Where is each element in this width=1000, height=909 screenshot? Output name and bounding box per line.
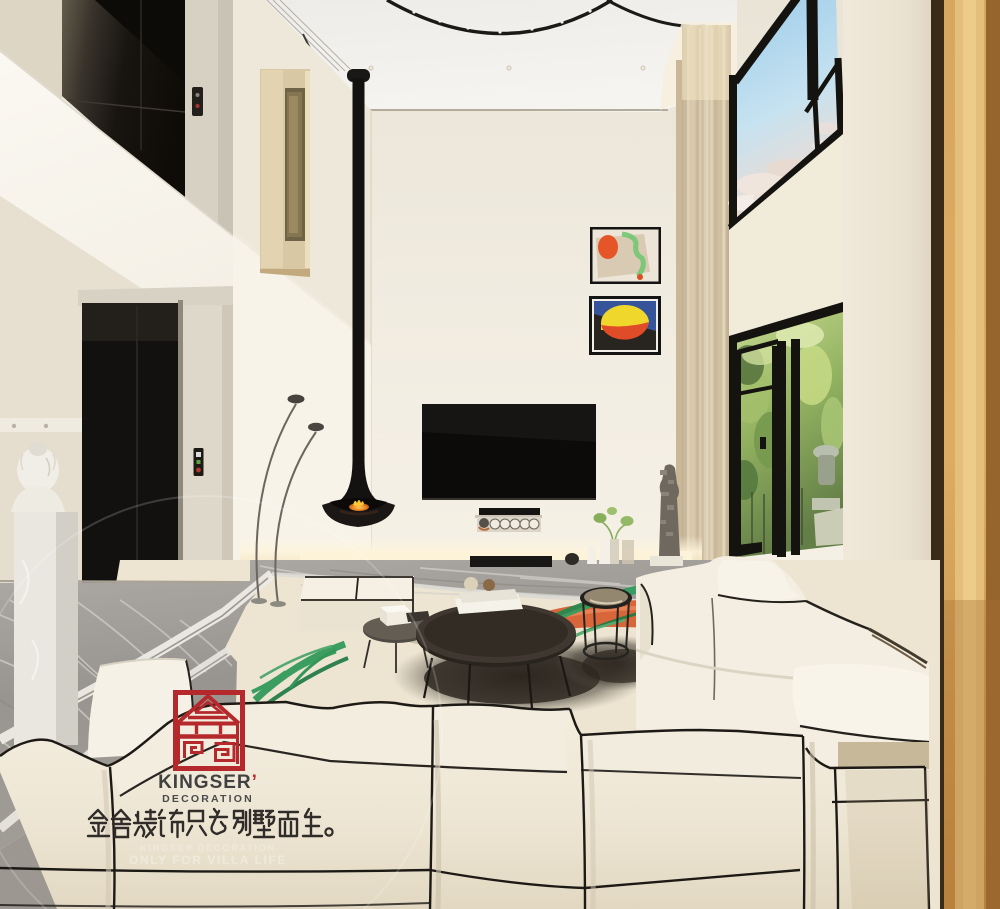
svg-text:KINGSER’: KINGSER’ [158, 772, 258, 793]
svg-text:DECORATION: DECORATION [162, 793, 254, 805]
svg-text:ONLY FOR VILLA LIFE: ONLY FOR VILLA LIFE [129, 853, 287, 867]
svg-text:KINGSER DECORATION: KINGSER DECORATION [140, 843, 276, 853]
